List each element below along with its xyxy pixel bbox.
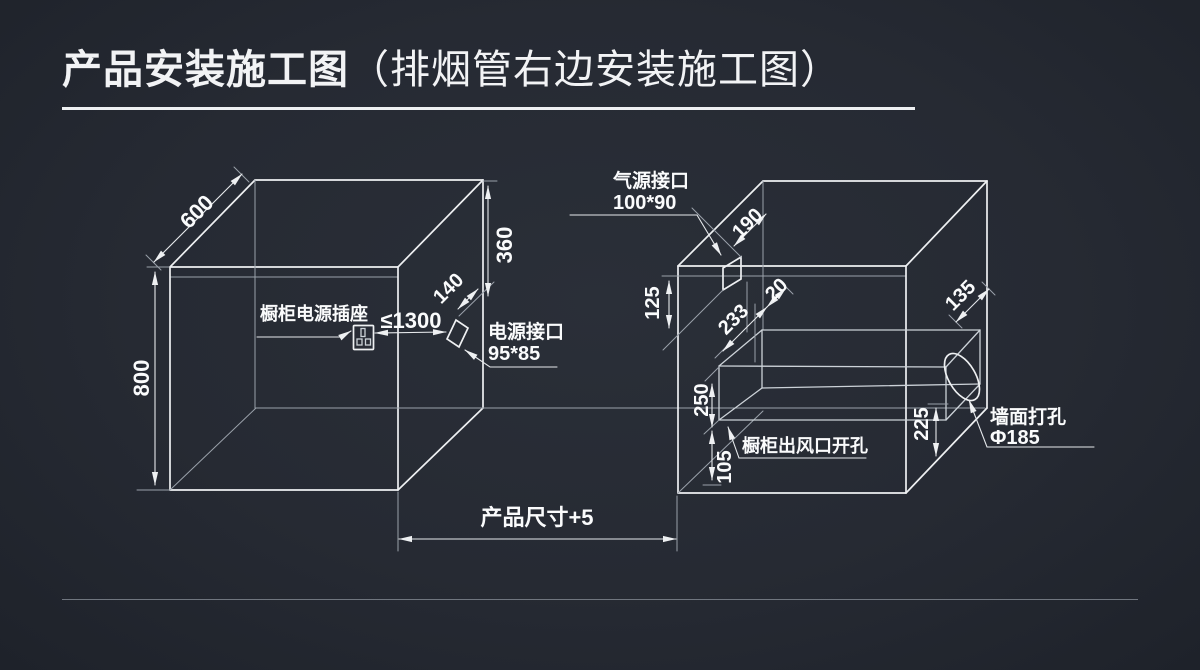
power-port-opening	[447, 320, 468, 347]
wall-hole-size: Φ185	[990, 427, 1040, 449]
dim-105-value: 105	[714, 450, 736, 483]
exhaust-duct	[719, 330, 987, 420]
installation-diagram: 600 800 360 140 橱柜电源插座	[0, 0, 1200, 670]
dim-duct-height: 250	[691, 367, 719, 434]
gas-port-opening	[723, 257, 741, 290]
dim-drop-to-port: 360	[459, 181, 517, 316]
cabinet-socket-label: 橱柜电源插座	[260, 303, 368, 324]
dim-left-depth: 600	[146, 167, 249, 270]
dim-250-value: 250	[691, 383, 713, 416]
label-gas-port: 气源接口 100*90	[570, 169, 721, 255]
dim-135-value: 135	[941, 276, 980, 315]
power-port-label: 电源接口	[488, 320, 564, 343]
dim-600-value: 600	[175, 190, 219, 234]
label-cabinet-socket: 橱柜电源插座	[257, 303, 368, 337]
wall-hole-ellipse	[937, 348, 986, 407]
power-port-size: 95*85	[488, 343, 540, 365]
dim-duct-bottom: 105	[703, 431, 736, 485]
drawing-canvas: 产品安装施工图（排烟管右边安装施工图）	[0, 0, 1200, 670]
dim-1300-value: ≤1300	[380, 308, 441, 333]
dim-top-clearance: 125	[642, 276, 723, 350]
dim-800-value: 800	[129, 360, 154, 397]
gas-port-size: 100*90	[613, 192, 676, 214]
dim-duct-gap: 20	[761, 274, 793, 307]
dim-left-height: 800	[129, 267, 169, 490]
label-duct-cutout: 橱柜出风口开孔	[728, 427, 868, 458]
gas-port-label: 气源接口	[612, 169, 689, 192]
dim-125-value: 125	[642, 286, 664, 319]
wall-hole-label: 墙面打孔	[990, 405, 1066, 428]
dim-port-offset: 140	[429, 269, 478, 309]
dim-socket-distance: ≤1300	[375, 308, 446, 333]
dim-gas-offset: 190	[692, 204, 767, 257]
dim-product-width: 产品尺寸+5	[398, 492, 677, 551]
dim-20-value: 20	[761, 274, 792, 305]
product-width-label: 产品尺寸+5	[480, 505, 593, 530]
label-power-port: 电源接口 95*85	[465, 320, 564, 367]
duct-cutout-label: 橱柜出风口开孔	[742, 435, 868, 456]
dim-hole-height: 225	[911, 404, 948, 456]
dim-140-value: 140	[429, 269, 468, 308]
cabinet-socket	[354, 326, 374, 350]
dim-duct-left-offset: 233	[714, 282, 767, 362]
dim-225-value: 225	[911, 407, 933, 440]
dim-360-value: 360	[492, 227, 517, 264]
